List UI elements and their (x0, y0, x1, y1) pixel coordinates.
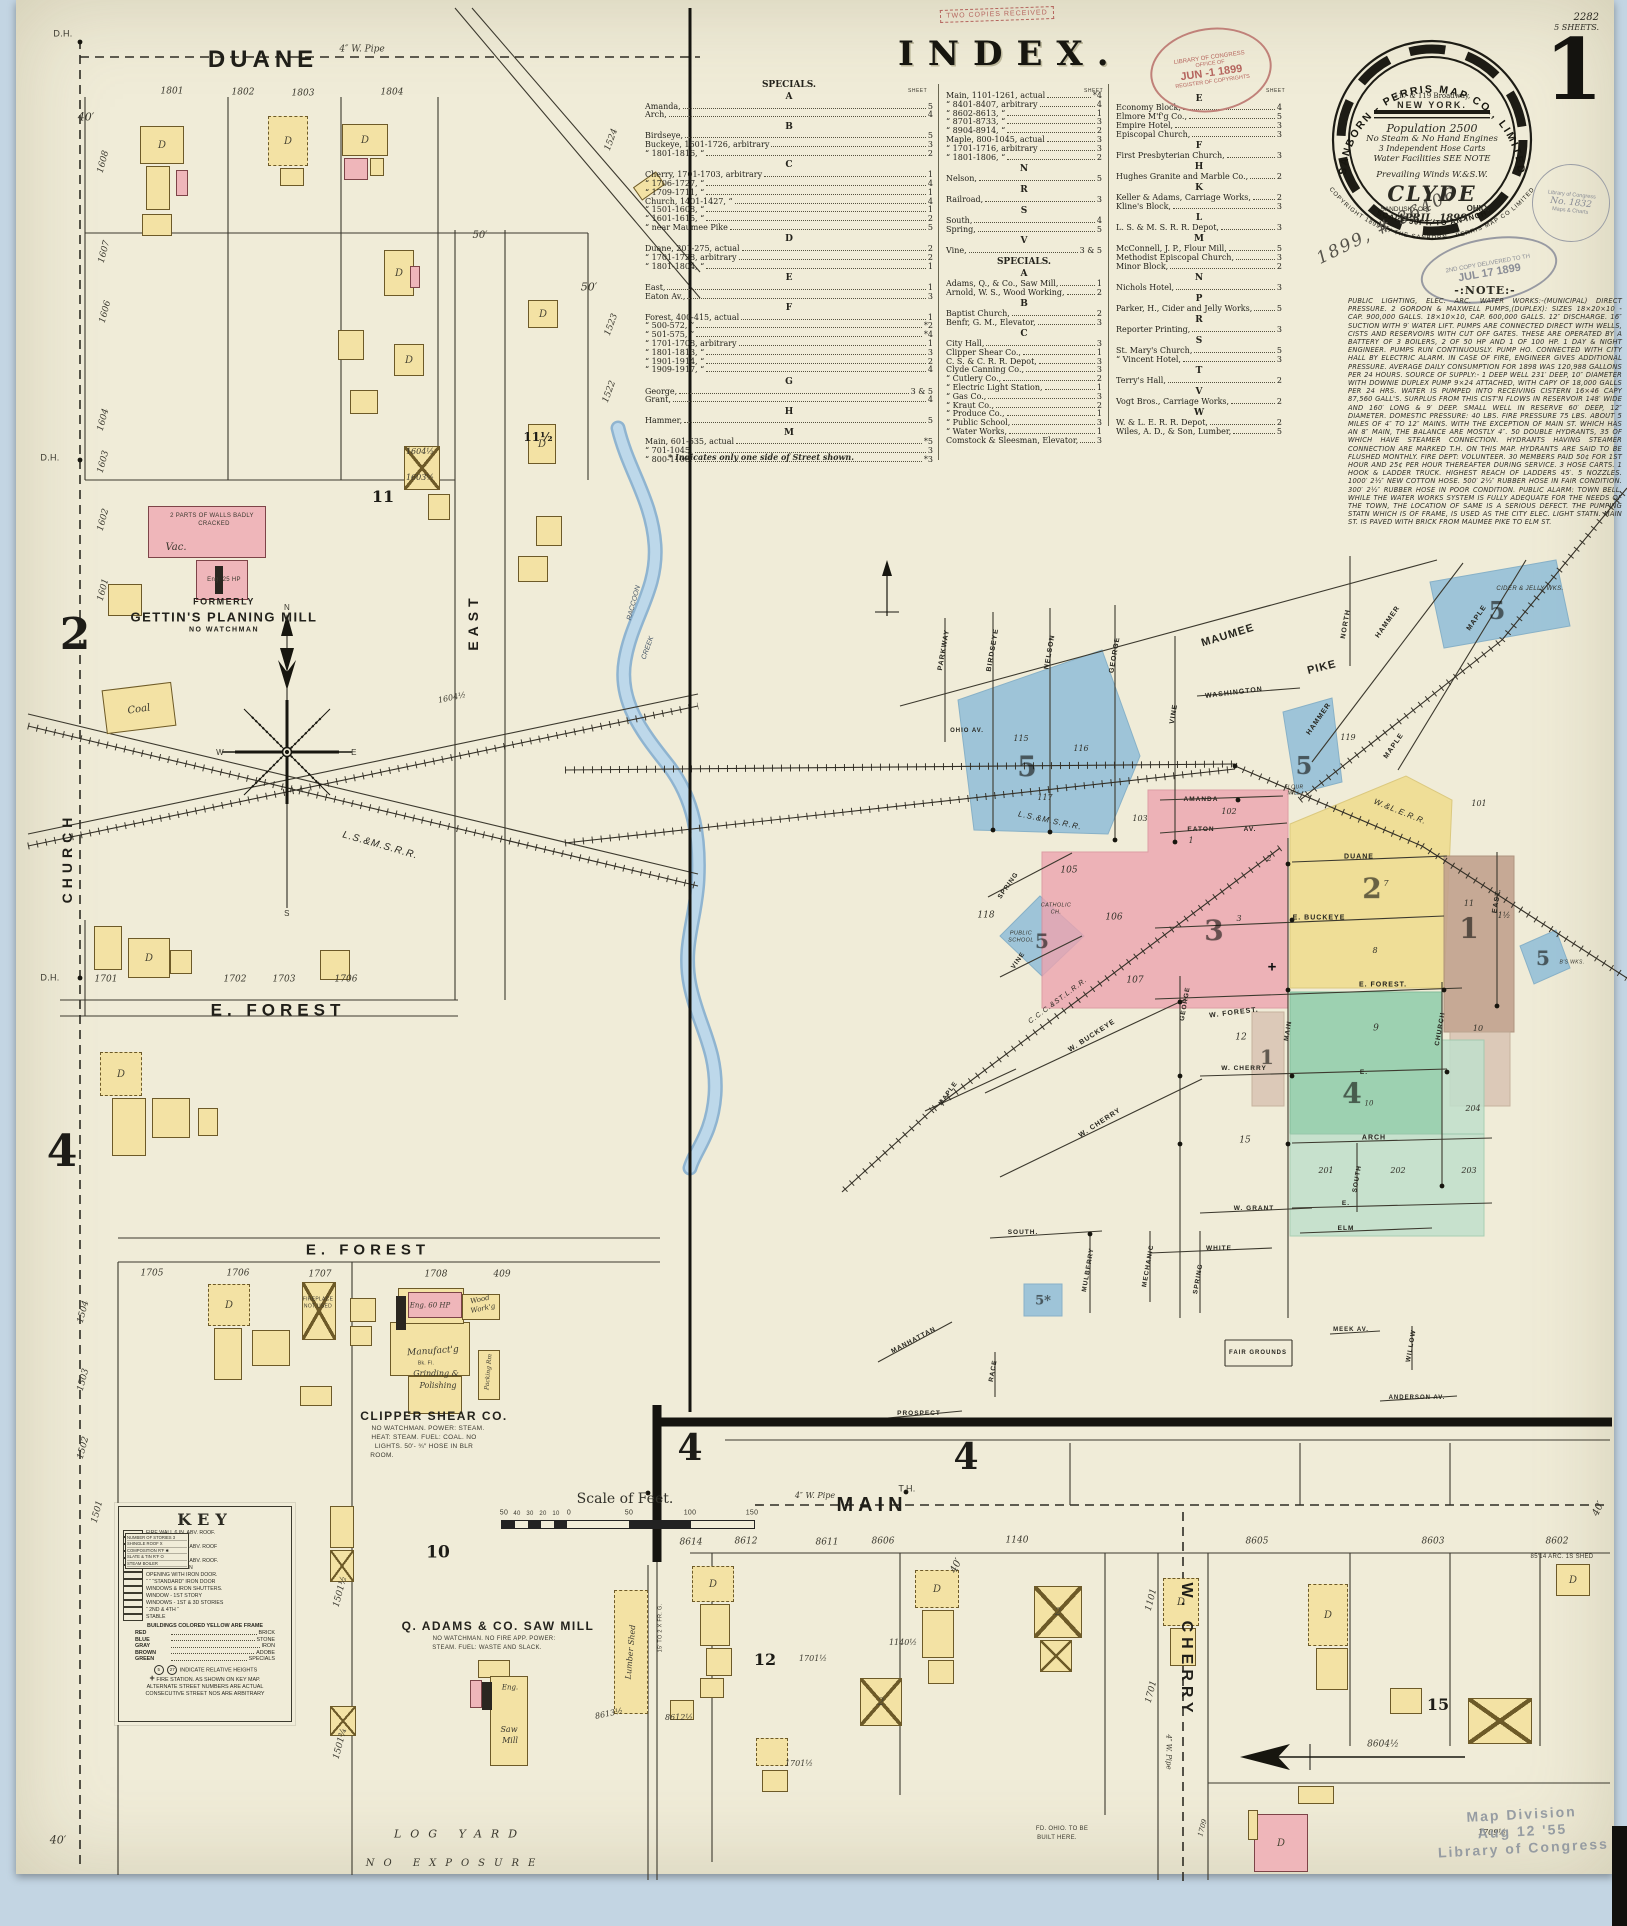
map-label: 15 (1239, 1137, 1250, 1146)
map-label: 2 (1362, 875, 1381, 903)
dot-leader (969, 252, 1078, 253)
map-label: 10 (426, 1545, 450, 1562)
index-rule (1108, 84, 1109, 426)
map-label: Scale of Feet. (577, 1492, 674, 1506)
dot-leader (683, 108, 926, 109)
key-fire-station-row: + FIRE STATION. AS SHOWN ON KEY MAP. (119, 1675, 291, 1684)
map-label: CRACKED (198, 521, 229, 527)
creek (618, 428, 715, 1168)
map-label: 1 (1459, 915, 1478, 943)
seal-engines: No Steam & No Hand Engines (1302, 134, 1562, 144)
map-label: 409 (493, 1271, 510, 1280)
map-label: MAIN (836, 1495, 907, 1515)
map-label: 9 (1373, 1025, 1379, 1034)
map-label: 118 (977, 912, 994, 921)
dot-leader (679, 393, 908, 394)
map-label: 5 (1017, 753, 1036, 781)
map-label: SCHOOL (1008, 938, 1034, 944)
map-label: 0 (567, 1510, 571, 1517)
index-entry: “ 1801-1806, “ 2 (946, 154, 1102, 163)
map-label: 105 (1060, 867, 1077, 876)
index-entry: Reporter Printing, 3 (1116, 326, 1282, 335)
index-entry: L. S. & M. S. R. R. Depot, 3 (1116, 224, 1282, 233)
building: 2 (860, 1678, 902, 1726)
dot-leader (1192, 136, 1275, 137)
index-entry: Spring, 5 (946, 226, 1102, 235)
building (338, 330, 364, 360)
dot-leader (1067, 294, 1095, 295)
map-label: W. CHERRY (1178, 1582, 1194, 1717)
dot-leader (736, 443, 922, 444)
index-entry: Benfr, G. M., Elevator, 3 (946, 319, 1102, 328)
hydrant-dot (78, 40, 83, 45)
index-letter-header: SPECIALS. (946, 256, 1102, 268)
hydrant-dot (1236, 798, 1241, 803)
map-label: 20 (539, 1511, 546, 1517)
building (756, 1738, 788, 1766)
map-label: 8612½ (665, 1714, 693, 1722)
dot-leader (978, 231, 1095, 232)
circled-5: 5 (154, 1665, 164, 1675)
building (1468, 1698, 1532, 1744)
index-footnote: * Indicates only one side of Street show… (668, 452, 854, 462)
index-letter-header: N (946, 162, 1102, 174)
key-sample-glyph (123, 1579, 143, 1586)
map-label: AMANDA (1184, 797, 1219, 804)
index-entry: Hughes Granite and Marble Co., 2 (1116, 173, 1282, 182)
map-label: 4″ W. Pipe (795, 1492, 835, 1500)
street-line (1000, 1079, 1202, 1177)
dot-leader (1254, 310, 1275, 311)
map-label: BUILT HERE. (1037, 1835, 1077, 1841)
building (302, 1282, 336, 1340)
map-label: NO WATCHMAN. POWER: STEAM. (372, 1426, 485, 1433)
map-label: 106 (1105, 914, 1122, 923)
index-letter-header: R (946, 183, 1102, 195)
building: D (140, 126, 184, 164)
compass-rose (222, 614, 352, 908)
building: D (394, 344, 424, 376)
note-text: PUBLIC LIGHTING, ELEC. ARC. WATER WORKS:… (1348, 297, 1622, 527)
key-sample-row: WINDOWS & IRON SHUTTERS. (119, 1586, 291, 1593)
map-label: CLIPPER SHEAR CO. (360, 1410, 508, 1422)
dot-leader (1039, 363, 1095, 364)
map-label: 10 (552, 1511, 559, 1517)
key-sample-glyph (123, 1607, 143, 1614)
building (176, 170, 188, 196)
index-entry: “ near Maumee Pike 5 (645, 224, 933, 233)
index-entry: George, 3 & 5 (645, 388, 933, 397)
key-note-1: ALTERNATE STREET NUMBERS ARE ACTUAL (119, 1684, 291, 1691)
circled-27: 27 (167, 1665, 177, 1675)
map-label: 5* (1035, 1295, 1051, 1308)
building: 2 (1034, 1586, 1082, 1638)
map-label: ELM (1338, 1226, 1355, 1233)
map-label: 1705 (141, 1270, 164, 1279)
map-label: 4″ W. Pipe (339, 46, 384, 55)
map-label: PUBLIC (1010, 931, 1032, 937)
map-label: 7 (1383, 880, 1388, 888)
map-label: 5 (1296, 754, 1313, 778)
building (252, 1330, 290, 1366)
hydrant-dot (78, 458, 83, 463)
key-color-row: BLUE STONE (119, 1637, 291, 1644)
index-letter-header: E (645, 271, 933, 283)
map-label: 1706 (335, 976, 358, 985)
hydrant-dot (991, 828, 996, 833)
dot-leader (1047, 97, 1091, 98)
dot-leader (979, 180, 1095, 181)
building: D (208, 1284, 250, 1326)
index-column-1: SPECIALS. A Amanda, 5 Arch, 4 B (645, 78, 933, 465)
index-rule (938, 84, 939, 460)
dot-leader (739, 259, 926, 260)
building (428, 494, 450, 520)
map-label: 150 (746, 1510, 759, 1517)
seal-city: NEW YORK. (1302, 100, 1562, 110)
dot-leader (1170, 268, 1275, 269)
map-label: DUANE (1344, 854, 1374, 861)
map-label: NO EXPOSURE (366, 1859, 545, 1869)
map-label: EATON (1187, 827, 1214, 834)
map-label: Saw (500, 1726, 517, 1734)
dot-leader (985, 201, 1095, 202)
map-label: 1802 (232, 89, 255, 98)
building (112, 1098, 146, 1156)
dot-leader (1040, 150, 1095, 151)
key-sample-row: WINDOWS - 1ST & 3D STORIES (119, 1600, 291, 1607)
hydrant-dot (1495, 1004, 1500, 1009)
map-label: 4 (677, 1430, 702, 1466)
map-label: 12 (754, 1652, 776, 1668)
key-sample-glyph (123, 1593, 143, 1600)
dot-leader (1007, 159, 1095, 160)
dot-leader (1175, 127, 1275, 128)
building (1248, 1810, 1258, 1840)
hydrant-dot (1088, 1232, 1093, 1237)
map-label: Eng. 60 HP (410, 1303, 451, 1310)
index-column-3: E Economy Block, 4 Elmore M'f'g Co., 5 E… (1116, 92, 1282, 437)
building (350, 390, 378, 414)
map-label: 1801 (161, 88, 184, 97)
key-color-row: RED BRICK (119, 1630, 291, 1637)
map-label: 4 (953, 1439, 978, 1475)
dot-leader (1229, 250, 1275, 251)
map-label: LOG YARD (394, 1829, 526, 1840)
map-label: 12 (1235, 1034, 1246, 1043)
index-letter-header: P (1116, 292, 1282, 304)
map-label: 5 (1489, 599, 1506, 623)
dot-leader (696, 327, 922, 328)
seal-town: CLYDE (1302, 181, 1562, 206)
index-letter-header: H (645, 405, 933, 417)
map-label: CH. (1051, 910, 1062, 916)
dot-leader (706, 211, 926, 212)
map-label: 1706 (227, 1270, 250, 1279)
map-label: 4 (47, 1130, 78, 1174)
building: D (128, 938, 170, 978)
building: D (1308, 1584, 1348, 1646)
hydrant-dot (1173, 840, 1178, 845)
index-entry: Amanda, 5 (645, 103, 933, 112)
dot-leader (1007, 115, 1095, 116)
building (1298, 1786, 1334, 1804)
map-label: ANDERSON AV. (1389, 1395, 1446, 1401)
dot-leader (1183, 361, 1275, 362)
dot-leader (1003, 380, 1095, 381)
map-label: D.H. (40, 974, 59, 983)
building (700, 1604, 730, 1646)
dot-leader (1012, 315, 1095, 316)
map-label: 1803 (292, 90, 315, 99)
dot-leader (669, 116, 926, 117)
map-division-stamp: Map Division Aug 12 '55 Library of Congr… (1429, 1801, 1616, 1862)
dot-leader (1045, 389, 1095, 390)
map-label: 1140 (1006, 1537, 1029, 1546)
map-label: + (1268, 960, 1277, 975)
map-label: 116 (1073, 745, 1088, 753)
map-label: 204 (1465, 1105, 1480, 1113)
map-label: W. GRANT (1234, 1206, 1275, 1213)
building (350, 1298, 376, 1322)
key-color-list: RED BRICK BLUE STONE GRAY IRON B (119, 1630, 291, 1663)
map-label: E. BUCKEYE (1293, 915, 1346, 922)
index-entry: “ Vincent Hotel, 3 (1116, 356, 1282, 365)
hydrant-dot (1286, 1142, 1291, 1147)
dot-leader (706, 194, 926, 195)
hydrant-dot (1445, 1070, 1450, 1075)
dot-leader (687, 298, 925, 299)
map-label: 2 (1266, 855, 1271, 863)
building (146, 166, 170, 210)
map-label: MEEK AV. (1333, 1327, 1369, 1333)
map-label: 8602 (1546, 1538, 1569, 1547)
building (928, 1660, 954, 1684)
building (396, 1296, 406, 1330)
dot-leader (1194, 352, 1275, 353)
key-sample-glyph (123, 1572, 143, 1579)
hydrant-dot (1048, 830, 1053, 835)
map-label: D.H. (40, 454, 59, 463)
index-letter-header: S (946, 205, 1102, 217)
map-label: GETTIN'S PLANING MILL (131, 611, 318, 624)
map-label: 50′ (581, 282, 598, 293)
dot-leader (667, 289, 925, 290)
map-label: Mill (502, 1737, 518, 1745)
map-label: DUANE (208, 48, 318, 72)
hydrant-dot (1233, 764, 1238, 769)
index-letter-header: R (1116, 314, 1282, 326)
index-entry: Arnold, W. S., Wood Working, 2 (946, 289, 1102, 298)
map-label: 100 (684, 1510, 697, 1517)
map-label: E. FOREST. (1359, 982, 1407, 989)
map-label: 1708 (425, 1271, 448, 1280)
map-label: 10 (1365, 1101, 1374, 1108)
index-entry: Railroad, 3 (946, 196, 1102, 205)
dot-leader (1080, 442, 1095, 443)
building (482, 1682, 492, 1710)
map-label: 8605 (1246, 1538, 1269, 1547)
map-label: 15′ TO 2 X FR. G. (658, 1604, 664, 1653)
map-label: 11½ (523, 431, 552, 443)
map-label: 11 (372, 489, 394, 505)
building: D (528, 300, 558, 328)
map-label: 8614 (680, 1539, 703, 1548)
map-label: 5 (1536, 948, 1550, 968)
building (1390, 1688, 1422, 1714)
map-label: 102 (1221, 808, 1236, 816)
building (344, 158, 368, 180)
dot-leader (1233, 433, 1275, 434)
map-label: 2 (60, 613, 91, 657)
map-label: 1703 (273, 976, 296, 985)
map-label: 103 (1132, 815, 1147, 823)
index-letter-header: F (645, 301, 933, 313)
map-label: CHURCH (60, 813, 74, 904)
map-label: E. FOREST (211, 1002, 346, 1019)
index-entry: Nichols Hotel, 3 (1116, 284, 1282, 293)
map-label: 8603 (1422, 1538, 1445, 1547)
map-label: SOUTH. (1008, 1230, 1039, 1237)
map-label: 50′ (473, 231, 488, 241)
building (470, 1680, 482, 1708)
dot-leader (1192, 331, 1275, 332)
dot-leader (735, 203, 926, 204)
building (198, 1108, 218, 1136)
map-label: 1701 (95, 976, 118, 985)
dot-leader (986, 345, 1095, 346)
dot-leader (706, 371, 926, 372)
map-label: Q. ADAMS & CO. SAW MILL (402, 1620, 595, 1632)
building: D (342, 124, 388, 156)
map-label: D.H. (53, 30, 72, 39)
map-label: 40 (513, 1511, 520, 1517)
building (1040, 1640, 1072, 1672)
map-label: 203 (1461, 1167, 1476, 1175)
building: D (100, 1052, 142, 1096)
index-entry: Minor Block, 2 (1116, 263, 1282, 272)
district-region (1290, 992, 1442, 1134)
map-label: 1707 (309, 1271, 332, 1280)
west-arrow-icon (1240, 1744, 1465, 1770)
map-label: 3 (1204, 917, 1223, 945)
dot-leader (1210, 424, 1275, 425)
map-label: 50 (625, 1510, 633, 1517)
index-letter-header: G (645, 375, 933, 387)
index-column-2: Main, 1101-1261, actual *4 “ 8401-8407, … (946, 92, 1102, 445)
map-label: 8611 (816, 1539, 839, 1548)
dot-leader (1253, 199, 1275, 200)
building: D (268, 116, 308, 166)
dot-leader (706, 220, 926, 221)
index-entry: Episcopal Church, 3 (1116, 131, 1282, 140)
map-label: E (351, 749, 357, 757)
key-sample-glyph (123, 1586, 143, 1593)
dot-leader (996, 407, 1095, 408)
index-entry: Wiles, A. D., & Son, Lumber, 5 (1116, 428, 1282, 437)
building (922, 1610, 954, 1658)
map-label: OHIO AV. (950, 728, 984, 734)
map-label: 1140½ (889, 1639, 917, 1647)
map-label: Bk. Fl. (418, 1362, 434, 1367)
key-note-2: CONSECUTIVE STREET NOS ARE ARBITRARY (119, 1691, 291, 1698)
map-label: E. (1342, 1201, 1350, 1208)
map-label: 119 (1340, 734, 1355, 742)
dot-leader (742, 250, 926, 251)
map-label: 1 (1188, 837, 1193, 845)
index-letter-header: B (645, 120, 933, 132)
dot-leader (1060, 285, 1095, 286)
building: D (1556, 1564, 1590, 1596)
dot-leader (1040, 106, 1095, 107)
map-label: PROSPECT (897, 1411, 941, 1418)
map-label: 1½ (1498, 912, 1511, 920)
building (170, 950, 192, 974)
map-label: 40′ (50, 1835, 67, 1846)
dot-leader (706, 185, 926, 186)
hydrant-dot (1178, 1074, 1183, 1079)
hydrant-dot (1290, 1074, 1295, 1079)
north-arrow-icon (875, 560, 899, 616)
index-entry: Arch, 4 (645, 111, 933, 120)
map-label: Eng. 25 HP (207, 577, 241, 583)
index-entry: Grant, 4 (645, 396, 933, 405)
dot-leader (1047, 141, 1095, 142)
dot-leader (764, 176, 926, 177)
map-label: 117 (1037, 794, 1052, 802)
index-letter-header: V (946, 234, 1102, 246)
map-label: 5 (1035, 931, 1049, 951)
seal-winds: Prevailing Winds W.&S.W. (1302, 170, 1562, 180)
hydrant-dot (1286, 862, 1291, 867)
key-sample-row: “ 2ND & 4TH “ (119, 1607, 291, 1614)
map-label: E. FOREST (306, 1243, 430, 1258)
dot-leader (706, 354, 926, 355)
map-label: 3 (1236, 915, 1241, 923)
dot-leader (1007, 415, 1095, 416)
dot-leader (1026, 371, 1095, 372)
map-label: 4″ W. Pipe (1165, 1734, 1172, 1769)
seal-date: APRIL, 1899 (1302, 213, 1562, 224)
map-label: 11 (1464, 900, 1474, 908)
map-label: 201 (1318, 1167, 1333, 1175)
map-label: NOT USED (304, 1305, 332, 1310)
dot-leader (730, 229, 926, 230)
dot-leader (685, 137, 926, 138)
dot-leader (974, 222, 1095, 223)
map-label: W (216, 749, 224, 757)
seal-address: 117 & 119 Broadway, (1302, 92, 1562, 100)
building (350, 1326, 372, 1346)
map-label: 8606 (872, 1538, 895, 1547)
map-label: 8612 (735, 1538, 758, 1547)
map-label: 107 (1126, 977, 1143, 986)
index-letter-header: A (645, 90, 933, 102)
map-label: AV. (1244, 827, 1257, 834)
building (142, 214, 172, 236)
index-entry: Comstock & Sleesman, Elevator, 3 (946, 437, 1102, 446)
seal-water: Water Facilities SEE NOTE (1302, 154, 1562, 164)
fire-station-cross-icon: + (150, 1673, 155, 1683)
map-label: B'S WKS. (1560, 961, 1585, 966)
key-sample-row: OPENING WITH IRON DOOR. (119, 1572, 291, 1579)
hydrant-dot (1178, 1142, 1183, 1147)
note-title: -:NOTE:- (1348, 284, 1622, 297)
map-label: WHITE (1206, 1246, 1232, 1253)
dot-leader (1227, 157, 1275, 158)
sanborn-map-sheet: SANBORN - PERRIS MAP CO., LIMITED SCALE … (0, 0, 1627, 1926)
index-entry: Terry's Hall, 2 (1116, 377, 1282, 386)
